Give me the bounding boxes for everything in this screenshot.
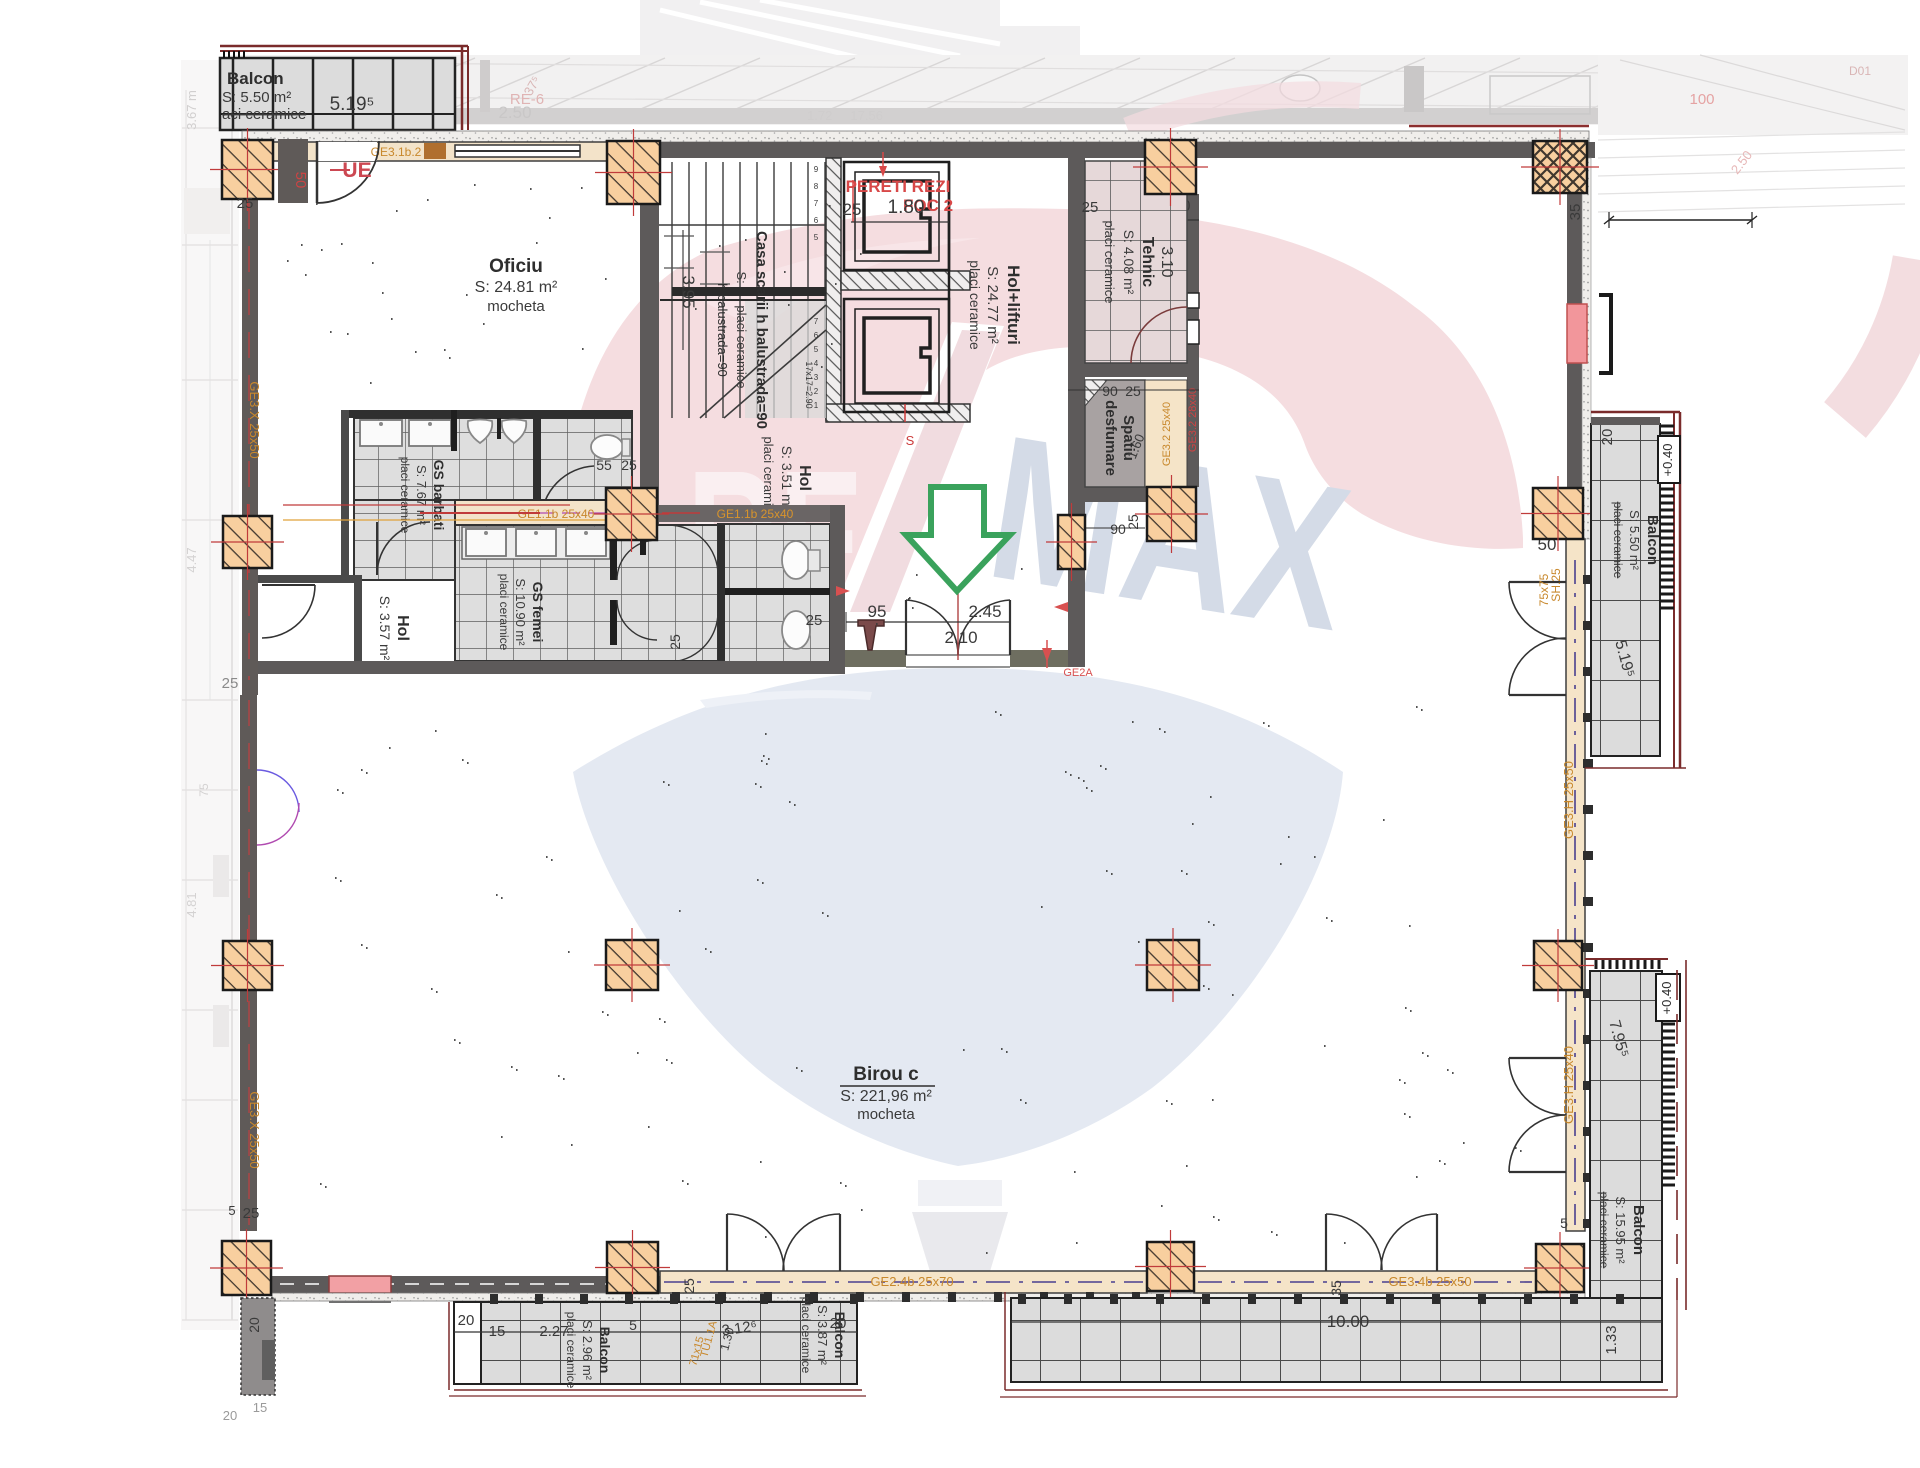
svg-text:20: 20: [830, 1315, 847, 1332]
svg-text:2.10: 2.10: [944, 628, 977, 647]
svg-text:S: 7.67 m²: S: 7.67 m²: [414, 465, 429, 526]
svg-text:D01: D01: [1849, 64, 1871, 78]
svg-text:S: S: [906, 433, 915, 448]
svg-text:3.10: 3.10: [1158, 246, 1175, 277]
svg-text:Oficiu: Oficiu: [489, 256, 543, 277]
svg-text:5: 5: [814, 233, 819, 242]
svg-text:Hol: Hol: [796, 465, 813, 491]
svg-text:GE3.H 25x50: GE3.H 25x50: [1561, 761, 1576, 839]
svg-text:PERETI REZI: PERETI REZI: [846, 177, 951, 196]
svg-text:+0.40: +0.40: [1659, 982, 1674, 1015]
svg-text:Casa scarii h balustrada=90: Casa scarii h balustrada=90: [753, 231, 770, 429]
svg-text:75x75: 75x75: [1537, 573, 1551, 606]
svg-text:4: 4: [814, 359, 819, 368]
svg-text:S: 2.96 m²: S: 2.96 m²: [580, 1320, 595, 1381]
svg-text:25: 25: [1125, 383, 1141, 399]
svg-text:GE3.2 25x40: GE3.2 25x40: [1161, 402, 1173, 466]
svg-text:S: 5.50 m²: S: 5.50 m²: [222, 89, 291, 106]
svg-text:20: 20: [223, 1408, 237, 1423]
svg-text:h balustrada=90: h balustrada=90: [715, 283, 730, 377]
svg-text:6: 6: [814, 331, 819, 340]
svg-text:5: 5: [228, 1203, 235, 1218]
svg-text:25: 25: [806, 612, 823, 629]
svg-text:7: 7: [814, 199, 819, 208]
svg-text:6: 6: [814, 216, 819, 225]
svg-text:2: 2: [814, 387, 819, 396]
svg-text:placi ceramice: placi ceramice: [1611, 502, 1625, 579]
svg-text:25: 25: [222, 675, 239, 692]
svg-text:1.33: 1.33: [1603, 1325, 1620, 1354]
svg-text:mocheta: mocheta: [487, 298, 545, 315]
svg-text:1: 1: [814, 401, 819, 410]
svg-text:+0.40: +0.40: [1660, 444, 1675, 477]
svg-text:GE2A: GE2A: [1063, 667, 1093, 679]
svg-text:25: 25: [237, 195, 254, 212]
svg-text:S: 3.57 m²: S: 3.57 m²: [377, 596, 393, 661]
svg-text:5: 5: [1560, 1215, 1568, 1231]
svg-text:15: 15: [489, 1323, 506, 1340]
svg-text:25: 25: [667, 634, 683, 650]
svg-text:GE3.4b 25x50: GE3.4b 25x50: [1388, 1274, 1471, 1289]
svg-text:90: 90: [1102, 383, 1118, 399]
svg-text:1.80: 1.80: [888, 197, 925, 218]
svg-text:S: 221,96 m²: S: 221,96 m²: [840, 1088, 932, 1105]
svg-text:S: 10.90 m²: S: 10.90 m²: [513, 578, 528, 646]
svg-text:GE3.X 25x50: GE3.X 25x50: [247, 1091, 262, 1168]
svg-text:95: 95: [868, 602, 887, 621]
svg-text:placi ceramice: placi ceramice: [1597, 1192, 1611, 1269]
svg-text:3.95: 3.95: [679, 275, 698, 308]
svg-text:placi ceramice: placi ceramice: [497, 574, 511, 651]
svg-text:2.45: 2.45: [968, 602, 1001, 621]
svg-text:GE1.1b 25x40: GE1.1b 25x40: [717, 507, 794, 521]
svg-text:placi ceramice: placi ceramice: [799, 1297, 813, 1374]
svg-text:GE3.2 28x40: GE3.2 28x40: [1187, 388, 1199, 452]
svg-text:20: 20: [246, 1317, 262, 1333]
svg-text:placi ceramice: placi ceramice: [967, 260, 983, 350]
svg-text:S: 15.95 m²: S: 15.95 m²: [1613, 1196, 1628, 1264]
svg-text:25: 25: [243, 1205, 260, 1222]
svg-text:S: 24.77 m²: S: 24.77 m²: [984, 266, 1001, 344]
svg-text:S: placi ceramice: S: placi ceramice: [734, 271, 749, 388]
svg-text:5: 5: [629, 1317, 637, 1333]
svg-text:GE3.H 25x40: GE3.H 25x40: [1561, 1046, 1576, 1124]
svg-text:17x17=2.90: 17x17=2.90: [804, 361, 814, 408]
svg-text:25: 25: [843, 200, 862, 219]
svg-text:GS femei: GS femei: [530, 582, 546, 643]
svg-text:2.27: 2.27: [539, 1323, 568, 1340]
svg-text:4.47: 4.47: [184, 547, 199, 572]
svg-text:7: 7: [814, 317, 819, 326]
svg-text:20: 20: [458, 1312, 475, 1329]
svg-text:S: 5.50 m²: S: 5.50 m²: [1627, 510, 1642, 571]
svg-text:9: 9: [814, 165, 819, 174]
svg-text:3: 3: [814, 373, 819, 382]
svg-text:8: 8: [814, 182, 819, 191]
svg-text:25: 25: [1125, 514, 1141, 530]
svg-text:mocheta: mocheta: [857, 1106, 915, 1123]
svg-text:Balcon: Balcon: [597, 1327, 613, 1374]
svg-text:desfumare: desfumare: [1102, 400, 1119, 476]
svg-text:S: 3.87 m²: S: 3.87 m²: [815, 1305, 830, 1366]
svg-text:SH.25: SH.25: [1549, 568, 1563, 602]
svg-text:75: 75: [197, 783, 211, 797]
svg-text:S: 4.08 m²: S: 4.08 m²: [1121, 230, 1137, 295]
svg-text:55: 55: [596, 457, 612, 473]
svg-text:Tehnic: Tehnic: [1139, 237, 1156, 287]
svg-text:25: 25: [681, 1278, 697, 1294]
svg-text:Hol+lifturi: Hol+lifturi: [1004, 265, 1023, 345]
svg-text:90: 90: [1110, 521, 1126, 537]
svg-text:placi ceramice: placi ceramice: [1102, 220, 1117, 303]
svg-text:25: 25: [1082, 199, 1099, 216]
svg-text:25: 25: [621, 457, 637, 473]
svg-text:Balcon: Balcon: [1630, 1205, 1647, 1255]
svg-text:1.72 17.56: 1.72 17.56: [807, 108, 883, 123]
svg-text:4.81: 4.81: [184, 892, 199, 917]
svg-text:20: 20: [1599, 429, 1616, 446]
svg-text:5: 5: [814, 345, 819, 354]
svg-text:S: 24.81 m²: S: 24.81 m²: [475, 279, 558, 296]
svg-text:Birou c: Birou c: [853, 1064, 919, 1085]
svg-text:35: 35: [1328, 1280, 1344, 1296]
svg-text:GE2.4b 25x70: GE2.4b 25x70: [870, 1274, 953, 1289]
svg-text:15: 15: [253, 1400, 267, 1415]
svg-text:Balcon: Balcon: [1644, 515, 1661, 565]
svg-text:GE3.X 25x50: GE3.X 25x50: [247, 381, 262, 458]
svg-text:Hol: Hol: [394, 615, 411, 641]
svg-text:100: 100: [1689, 91, 1714, 108]
svg-text:aci ceramice: aci ceramice: [222, 106, 306, 123]
svg-text:50: 50: [292, 172, 309, 189]
svg-text:Balcon: Balcon: [227, 69, 284, 88]
svg-text:S: 3.51 m²: S: 3.51 m²: [779, 446, 795, 511]
svg-text:35: 35: [1567, 204, 1584, 221]
svg-text:placi ceramice: placi ceramice: [398, 457, 412, 534]
svg-text:3.67 m: 3.67 m: [184, 90, 199, 130]
svg-text:5.19⁵: 5.19⁵: [330, 94, 375, 115]
